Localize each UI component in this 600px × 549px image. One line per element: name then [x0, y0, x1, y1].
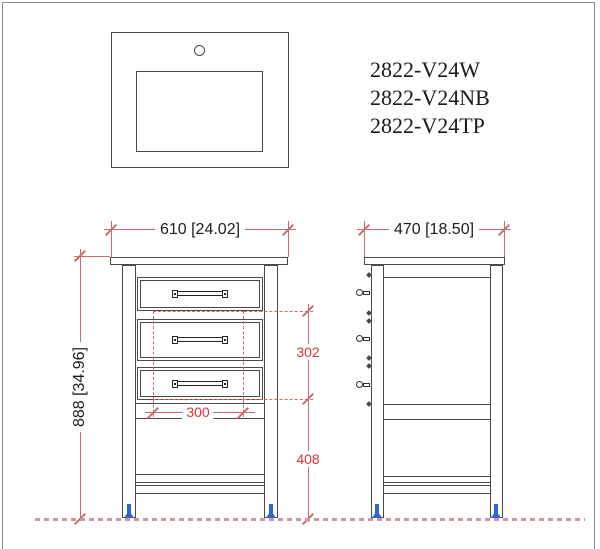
front-left-leg	[122, 265, 136, 518]
product-code: 2822-V24NB	[370, 84, 490, 112]
leveler-foot-icon	[266, 504, 276, 518]
dashed-extension	[244, 399, 313, 400]
handle-bar	[178, 291, 222, 296]
handle-post-right	[222, 290, 228, 298]
front-right-leg	[264, 265, 278, 518]
sink-basin-outline	[136, 71, 263, 152]
cabinet-width-label: 610 [24.02]	[155, 221, 245, 239]
leveler-foot-icon	[124, 504, 134, 518]
side-countertop-slab	[364, 257, 505, 265]
side-shelf-line	[384, 476, 490, 477]
faucet-hole-icon	[194, 45, 205, 56]
front-shelf-edge	[136, 482, 264, 486]
drawer-bank-width-label: 300	[182, 404, 213, 420]
product-code: 2822-V24W	[370, 56, 490, 84]
cabinet-depth-label: 470 [18.50]	[389, 221, 479, 239]
drawer-handle-icon	[172, 290, 228, 298]
leveler-foot-icon	[491, 504, 501, 518]
dashed-extension	[243, 400, 244, 417]
drawer-front-1	[137, 277, 263, 311]
ground-reference-line	[35, 518, 585, 521]
dashed-extension	[244, 311, 313, 312]
open-section-height-label: 408	[292, 451, 323, 467]
front-countertop-slab	[110, 257, 288, 265]
drawer-bank-dashed-outline	[153, 311, 244, 400]
leveler-foot-icon	[372, 504, 382, 518]
side-top-rail	[384, 265, 490, 278]
side-shelf-line	[384, 493, 490, 494]
side-shelf-edge	[384, 482, 490, 486]
product-code-list: 2822-V24W 2822-V24NB 2822-V24TP	[370, 56, 490, 140]
side-back-leg	[490, 265, 503, 518]
drawer-knob-side-icon	[356, 289, 371, 297]
front-shelf-line	[136, 493, 264, 494]
cabinet-height-label: 888 [34.96]	[71, 342, 89, 432]
side-mid-rail	[384, 404, 490, 420]
product-code: 2822-V24TP	[370, 112, 490, 140]
drawer-bank-height-label: 302	[292, 344, 323, 360]
drawer-knob-side-icon	[356, 335, 371, 343]
side-front-leg	[371, 265, 384, 518]
technical-drawing-canvas: 2822-V24W 2822-V24NB 2822-V24TP 610 [24.…	[0, 0, 600, 549]
dashed-extension	[153, 400, 154, 417]
drawer-knob-side-icon	[356, 381, 371, 389]
front-shelf-line	[136, 474, 264, 475]
